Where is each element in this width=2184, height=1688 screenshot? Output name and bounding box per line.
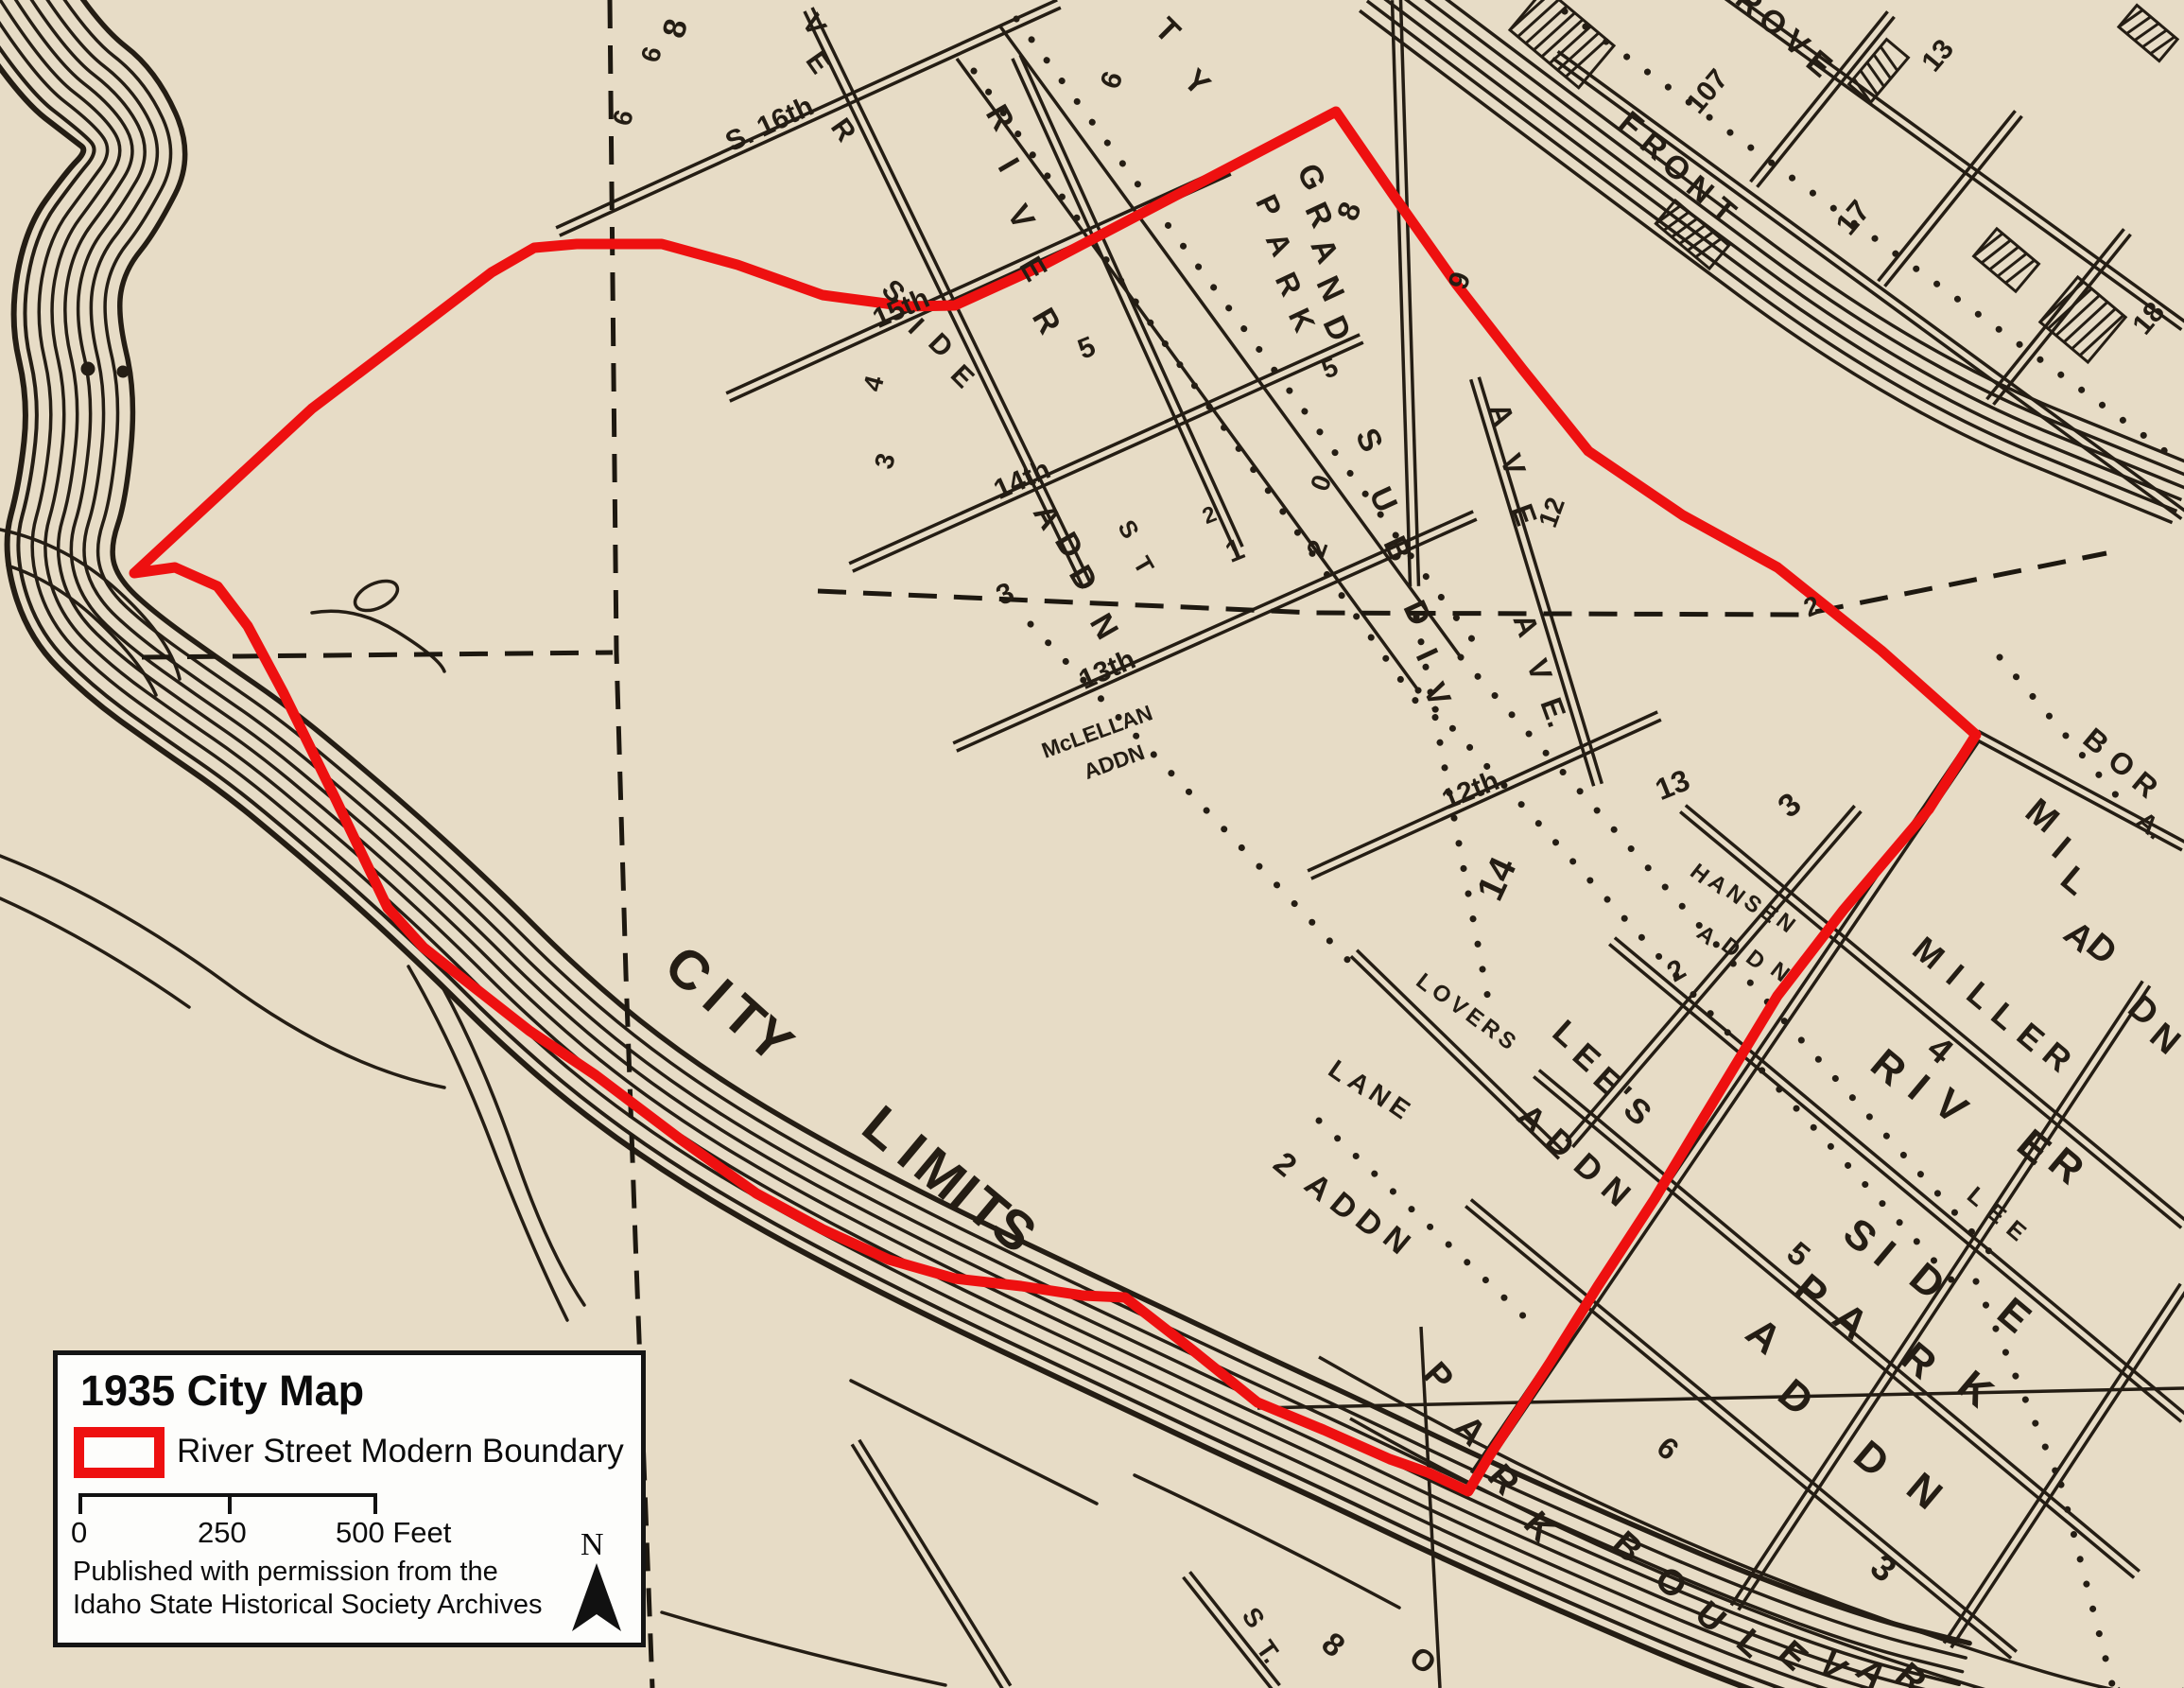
attribution-line-1: Published with permission from the xyxy=(73,1556,542,1589)
scale-bar-mid-tick xyxy=(228,1497,232,1514)
scale-label-250: 250 xyxy=(198,1516,247,1550)
boundary-symbol-label: River Street Modern Boundary xyxy=(177,1433,624,1470)
attribution-text: Published with permission from the Idaho… xyxy=(73,1556,542,1622)
map-screenshot: 866S. 16thVERRIVERSIDEADDNST15th14th13th… xyxy=(0,0,2184,1688)
scale-label-500: 500 Feet xyxy=(336,1516,451,1550)
north-label: N xyxy=(581,1527,604,1563)
legend-title: 1935 City Map xyxy=(80,1366,364,1416)
north-arrow-icon xyxy=(559,1559,634,1639)
scale-label-0: 0 xyxy=(71,1516,87,1550)
scale-bar xyxy=(78,1493,377,1514)
boundary-symbol-swatch xyxy=(74,1427,165,1478)
attribution-line-2: Idaho State Historical Society Archives xyxy=(73,1589,542,1622)
legend-panel: 1935 City Map River Street Modern Bounda… xyxy=(53,1350,646,1647)
